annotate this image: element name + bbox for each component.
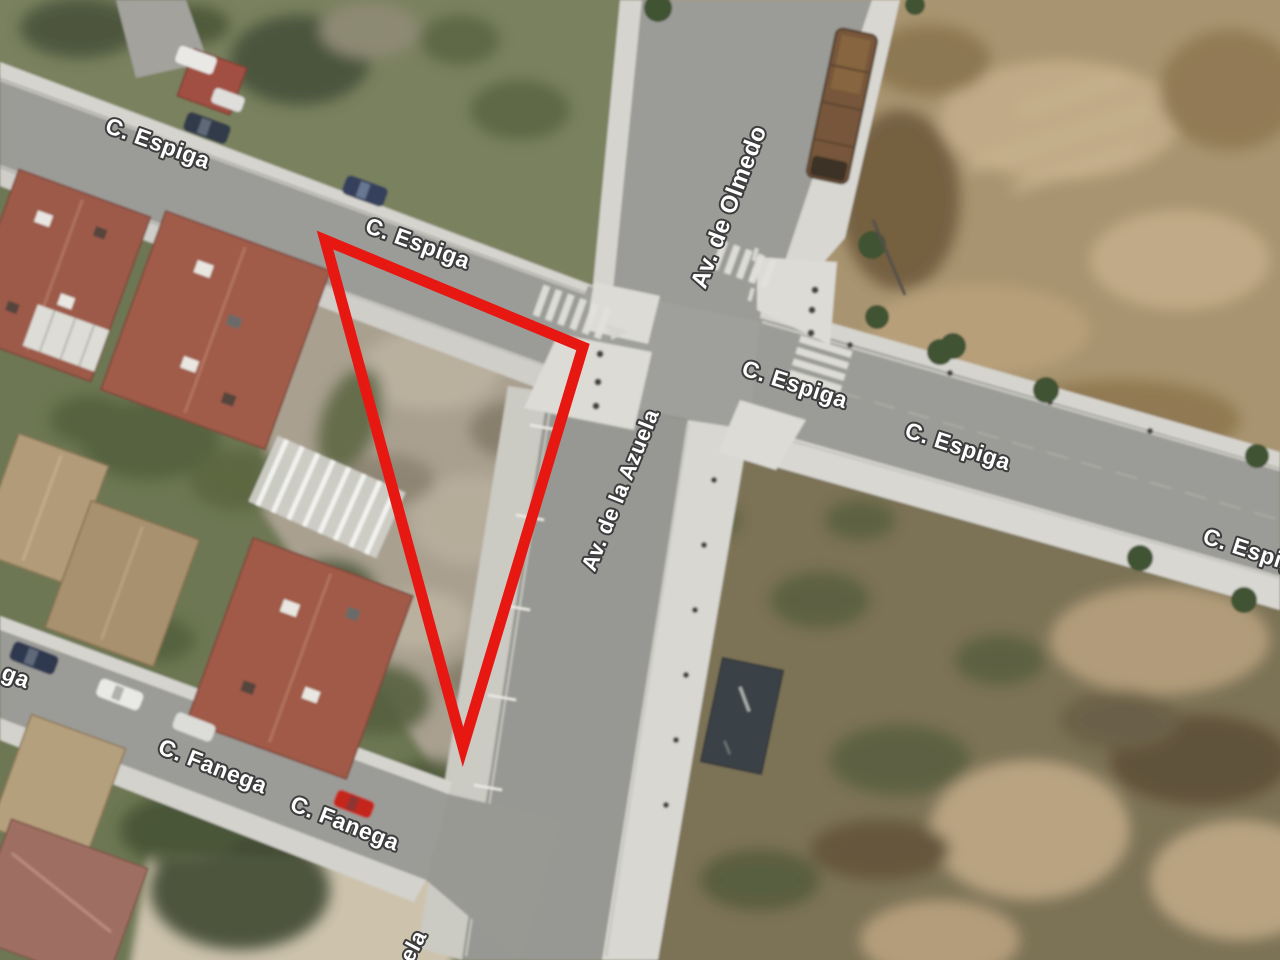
map-viewport[interactable]: C. Espiga C. Espiga Av. de Olmedo C. Esp…: [0, 0, 1280, 960]
aerial-basemap: C. Espiga C. Espiga Av. de Olmedo C. Esp…: [0, 0, 1280, 960]
